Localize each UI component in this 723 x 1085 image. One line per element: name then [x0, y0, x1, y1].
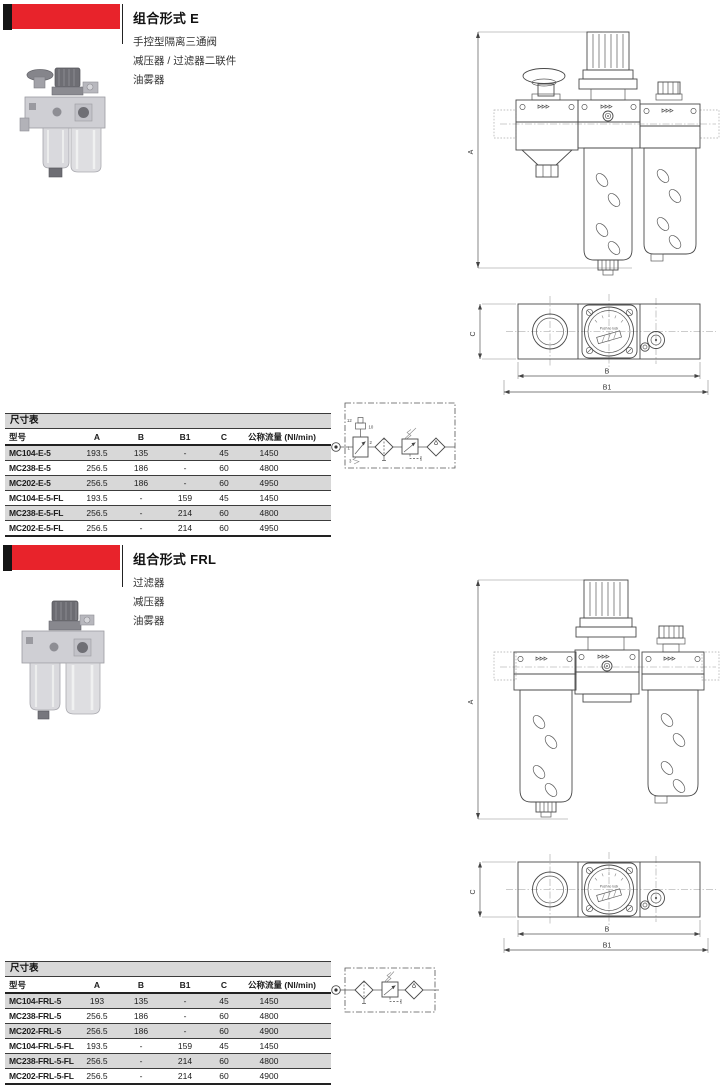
section-frl-description: 过滤器 减压器 油雾器 — [133, 574, 165, 631]
cell: 60 — [207, 1054, 241, 1069]
cell: 256.5 — [75, 1024, 119, 1039]
cell: 135 — [119, 445, 163, 461]
product-photo-e — [17, 62, 113, 178]
cell: 214 — [163, 506, 207, 521]
section-e-divider — [122, 4, 123, 44]
cell: 256.5 — [75, 521, 119, 537]
cell: - — [163, 476, 207, 491]
cell: 60 — [207, 1069, 241, 1085]
cell: 256.5 — [75, 461, 119, 476]
table-row: MC104-FRL-5-FL193.5-159451450 — [5, 1039, 331, 1054]
cell: 45 — [207, 993, 241, 1009]
cell: MC202-FRL-5 — [5, 1024, 75, 1039]
cell: 186 — [119, 461, 163, 476]
cell: - — [119, 1054, 163, 1069]
desc-line: 减压器 — [133, 593, 165, 612]
cell: - — [119, 521, 163, 537]
cell: MC238-FRL-5-FL — [5, 1054, 75, 1069]
circuit-diagram-frl — [328, 958, 468, 1018]
table-row: MC104-E-5193.5135-451450 — [5, 445, 331, 461]
cell: - — [119, 506, 163, 521]
cell: 1450 — [241, 445, 331, 461]
cell: 256.5 — [75, 476, 119, 491]
cell: 60 — [207, 461, 241, 476]
dimension-label-b: B — [605, 927, 610, 934]
cell: MC104-E-5-FL — [5, 491, 75, 506]
section-frl-black-tab — [3, 545, 12, 571]
cell: MC104-FRL-5-FL — [5, 1039, 75, 1054]
cell: 193.5 — [75, 1039, 119, 1054]
cell: 256.5 — [75, 506, 119, 521]
column-header: 型号 — [5, 429, 75, 445]
table-row: MC202-E-5256.5186-604950 — [5, 476, 331, 491]
dimension-label-c: C — [470, 331, 477, 336]
cell: 214 — [163, 521, 207, 537]
cell: 60 — [207, 506, 241, 521]
cell: 256.5 — [75, 1069, 119, 1085]
cell: 4900 — [241, 1024, 331, 1039]
cell: 214 — [163, 1054, 207, 1069]
cell: 60 — [207, 521, 241, 537]
dimension-table-frl: 型号ABB1C公称流量 (Nl/min)MC104-FRL-5193135-45… — [5, 977, 331, 1085]
top-view-drawing-e: Push to lock C B B1 — [460, 284, 723, 402]
cell: 45 — [207, 1039, 241, 1054]
table-row: MC104-FRL-5193135-451450 — [5, 993, 331, 1009]
table-row: MC238-E-5-FL256.5-214604800 — [5, 506, 331, 521]
section-e-title: 组合形式 E — [133, 8, 199, 27]
cell: - — [163, 1009, 207, 1024]
cell: 60 — [207, 476, 241, 491]
cell: 4800 — [241, 1009, 331, 1024]
dimension-label-a: A — [468, 699, 475, 704]
dimension-label-b: B — [605, 369, 610, 376]
column-header: 型号 — [5, 977, 75, 993]
cell: - — [163, 1024, 207, 1039]
cell: 159 — [163, 1039, 207, 1054]
cell: MC104-E-5 — [5, 445, 75, 461]
dimension-label-c: C — [470, 889, 477, 894]
dimension-label-b1: B1 — [603, 385, 612, 392]
circuit-diagram-e: 12 10 1 2 3 — [328, 398, 468, 476]
cell: - — [119, 1069, 163, 1085]
product-photo-frl — [16, 597, 112, 723]
cell: MC104-FRL-5 — [5, 993, 75, 1009]
cell: 60 — [207, 1009, 241, 1024]
cell: 4800 — [241, 506, 331, 521]
cell: 1450 — [241, 993, 331, 1009]
cell: 256.5 — [75, 1054, 119, 1069]
cell: 4950 — [241, 521, 331, 537]
cell: 1450 — [241, 1039, 331, 1054]
table-row: MC104-E-5-FL193.5-159451450 — [5, 491, 331, 506]
cell: 186 — [119, 1024, 163, 1039]
dimension-label-b1: B1 — [603, 943, 612, 950]
cell: MC238-E-5-FL — [5, 506, 75, 521]
cell: 4800 — [241, 461, 331, 476]
table-row: MC238-E-5256.5186-604800 — [5, 461, 331, 476]
dimension-table-e: 型号ABB1C公称流量 (Nl/min)MC104-E-5193.5135-45… — [5, 429, 331, 537]
desc-line: 油雾器 — [133, 71, 236, 90]
column-header: 公称流量 (Nl/min) — [241, 977, 331, 993]
cell: - — [163, 993, 207, 1009]
cell: 193.5 — [75, 491, 119, 506]
circuit-port-1: 1 — [348, 446, 351, 451]
cell: - — [119, 1039, 163, 1054]
desc-line: 油雾器 — [133, 612, 165, 631]
top-view-drawing-frl: Push to lock C B B1 — [460, 842, 723, 960]
header-row: 型号ABB1C公称流量 (Nl/min) — [5, 429, 331, 445]
desc-line: 减压器 / 过滤器二联件 — [133, 52, 236, 71]
column-header: A — [75, 429, 119, 445]
section-frl-divider — [122, 545, 123, 587]
header-row: 型号ABB1C公称流量 (Nl/min) — [5, 977, 331, 993]
table-caption-e: 尺寸表 — [5, 413, 331, 429]
desc-line: 过滤器 — [133, 574, 165, 593]
desc-line: 手控型隔离三通阀 — [133, 33, 236, 52]
section-frl-title: 组合形式 FRL — [133, 549, 216, 568]
cell: 4950 — [241, 476, 331, 491]
circuit-port-10: 10 — [369, 425, 374, 430]
cell: 193.5 — [75, 445, 119, 461]
cell: MC202-FRL-5-FL — [5, 1069, 75, 1085]
cell: 4800 — [241, 1054, 331, 1069]
column-header: 公称流量 (Nl/min) — [241, 429, 331, 445]
cell: 45 — [207, 445, 241, 461]
table-row: MC202-FRL-5256.5186-604900 — [5, 1024, 331, 1039]
cell: 45 — [207, 491, 241, 506]
cell: 1450 — [241, 491, 331, 506]
column-header: C — [207, 429, 241, 445]
cell: 135 — [119, 993, 163, 1009]
circuit-port-12: 12 — [347, 418, 352, 423]
section-e-description: 手控型隔离三通阀 减压器 / 过滤器二联件 油雾器 — [133, 33, 236, 90]
section-frl-red-bar — [12, 545, 120, 570]
table-row: MC202-FRL-5-FL256.5-214604900 — [5, 1069, 331, 1085]
cell: 186 — [119, 476, 163, 491]
front-view-drawing-frl: A — [460, 574, 720, 836]
column-header: B1 — [163, 977, 207, 993]
table-row: MC202-E-5-FL256.5-214604950 — [5, 521, 331, 537]
cell: 159 — [163, 491, 207, 506]
front-view-drawing-e: A — [460, 24, 720, 276]
cell: 193 — [75, 993, 119, 1009]
column-header: B — [119, 429, 163, 445]
column-header: C — [207, 977, 241, 993]
cell: MC202-E-5 — [5, 476, 75, 491]
cell: - — [119, 491, 163, 506]
gauge-label: Push to lock — [600, 327, 619, 331]
column-header: B1 — [163, 429, 207, 445]
section-e-red-bar — [12, 4, 120, 29]
cell: 256.5 — [75, 1009, 119, 1024]
circuit-port-3: 3 — [349, 459, 352, 464]
column-header: A — [75, 977, 119, 993]
cell: MC238-E-5 — [5, 461, 75, 476]
cell: 186 — [119, 1009, 163, 1024]
gauge-label: Push to lock — [600, 885, 619, 889]
flow-direction-mark — [538, 105, 549, 108]
cell: - — [163, 445, 207, 461]
table-row: MC238-FRL-5256.5186-604800 — [5, 1009, 331, 1024]
dimension-label-a: A — [468, 149, 475, 154]
circuit-port-2: 2 — [370, 440, 373, 445]
column-header: B — [119, 977, 163, 993]
table-row: MC238-FRL-5-FL256.5-214604800 — [5, 1054, 331, 1069]
cell: 214 — [163, 1069, 207, 1085]
cell: - — [163, 461, 207, 476]
cell: MC238-FRL-5 — [5, 1009, 75, 1024]
table-caption-frl: 尺寸表 — [5, 961, 331, 977]
cell: 60 — [207, 1024, 241, 1039]
cell: MC202-E-5-FL — [5, 521, 75, 537]
section-e-black-tab — [3, 4, 12, 30]
cell: 4900 — [241, 1069, 331, 1085]
